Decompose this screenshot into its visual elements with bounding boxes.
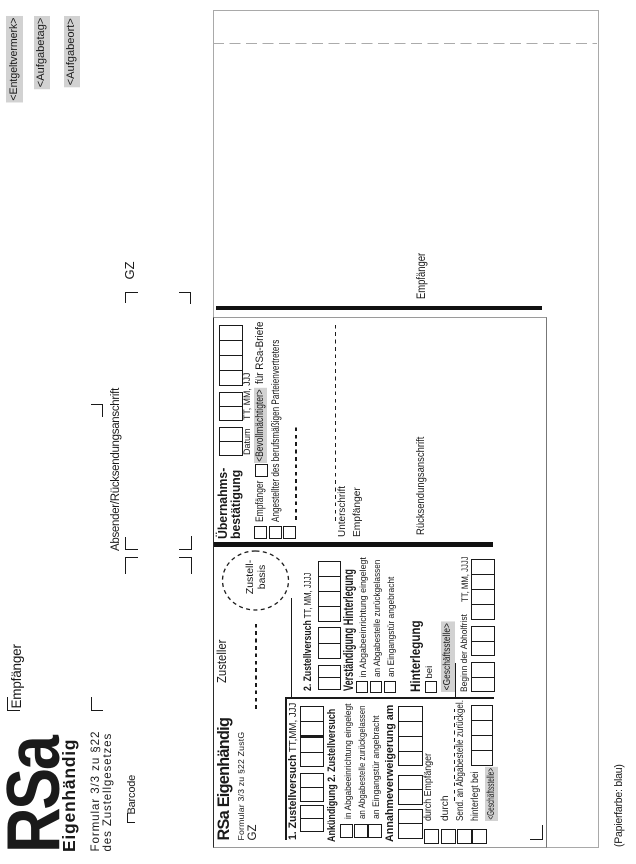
svg-text:basis: basis [256,565,268,590]
svg-text:Zustell-: Zustell- [244,560,256,595]
